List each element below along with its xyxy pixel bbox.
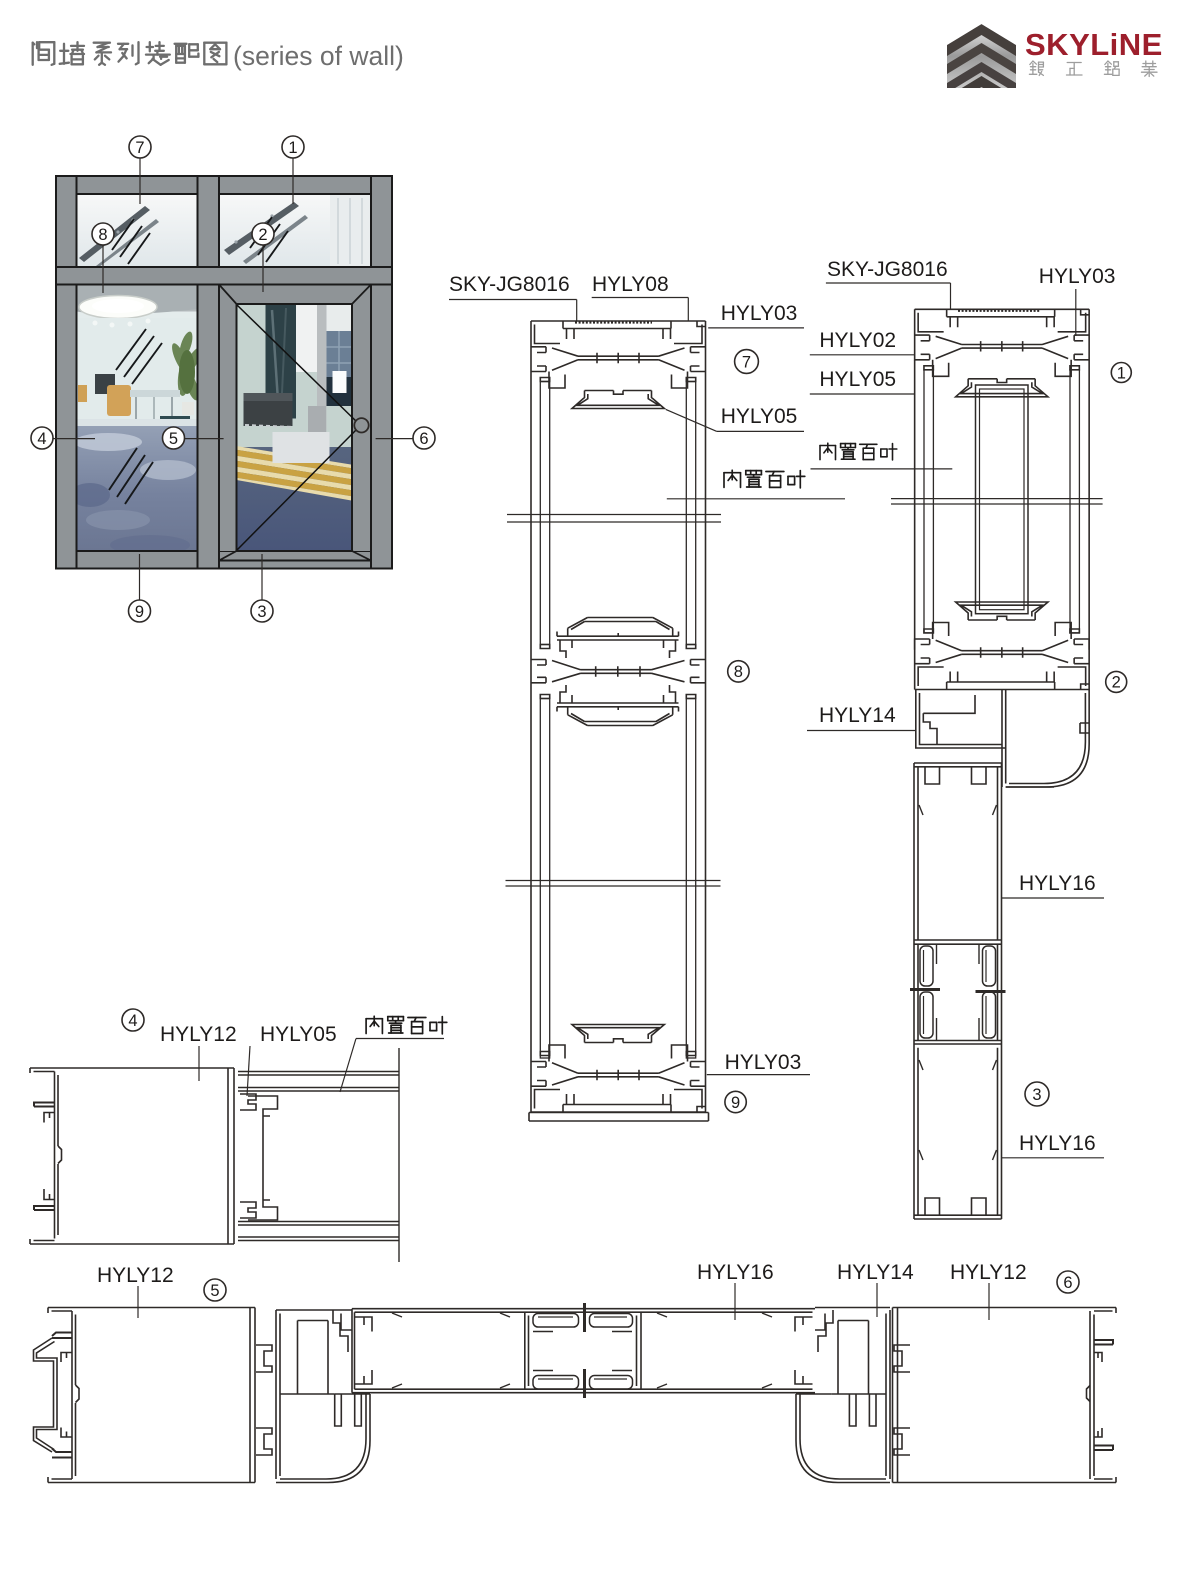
svg-text:8: 8 (734, 663, 743, 681)
svg-text:SKY-JG8016: SKY-JG8016 (827, 258, 948, 281)
svg-text:HYLY14: HYLY14 (837, 1261, 914, 1284)
svg-text:HYLY14: HYLY14 (819, 704, 896, 727)
svg-text:HYLY12: HYLY12 (950, 1261, 1027, 1284)
svg-text:7: 7 (135, 139, 144, 157)
svg-text:HYLY05: HYLY05 (260, 1023, 337, 1046)
svg-text:HYLY12: HYLY12 (160, 1023, 237, 1046)
svg-text:HYLY03: HYLY03 (1039, 265, 1116, 288)
svg-text:6: 6 (1063, 1274, 1072, 1292)
svg-text:5: 5 (169, 430, 178, 448)
svg-text:HYLY12: HYLY12 (97, 1264, 174, 1287)
svg-text:3: 3 (257, 603, 266, 621)
svg-text:2: 2 (258, 226, 267, 244)
svg-text:9: 9 (731, 1094, 740, 1112)
svg-text:9: 9 (135, 603, 144, 621)
svg-text:5: 5 (210, 1282, 219, 1300)
svg-text:HYLY05: HYLY05 (819, 368, 896, 391)
svg-text:1: 1 (288, 139, 297, 157)
svg-text:HYLY16: HYLY16 (1019, 872, 1096, 895)
svg-text:2: 2 (1112, 674, 1121, 692)
svg-text:(series of wall): (series of wall) (233, 41, 404, 71)
svg-text:HYLY08: HYLY08 (592, 273, 669, 296)
svg-text:HYLY16: HYLY16 (697, 1261, 774, 1284)
svg-text:HYLY02: HYLY02 (819, 329, 896, 352)
svg-text:6: 6 (419, 430, 428, 448)
svg-text:8: 8 (98, 226, 107, 244)
svg-text:3: 3 (1032, 1086, 1041, 1104)
svg-text:7: 7 (742, 353, 751, 371)
svg-text:HYLY03: HYLY03 (725, 1051, 802, 1074)
svg-text:HYLY16: HYLY16 (1019, 1132, 1096, 1155)
svg-text:SKY-JG8016: SKY-JG8016 (449, 273, 570, 296)
svg-text:SKYLiNE: SKYLiNE (1025, 27, 1163, 62)
svg-text:1: 1 (1117, 364, 1126, 382)
svg-text:HYLY05: HYLY05 (721, 405, 798, 428)
svg-text:HYLY03: HYLY03 (721, 302, 798, 325)
svg-text:4: 4 (37, 430, 46, 448)
svg-text:4: 4 (128, 1012, 137, 1030)
